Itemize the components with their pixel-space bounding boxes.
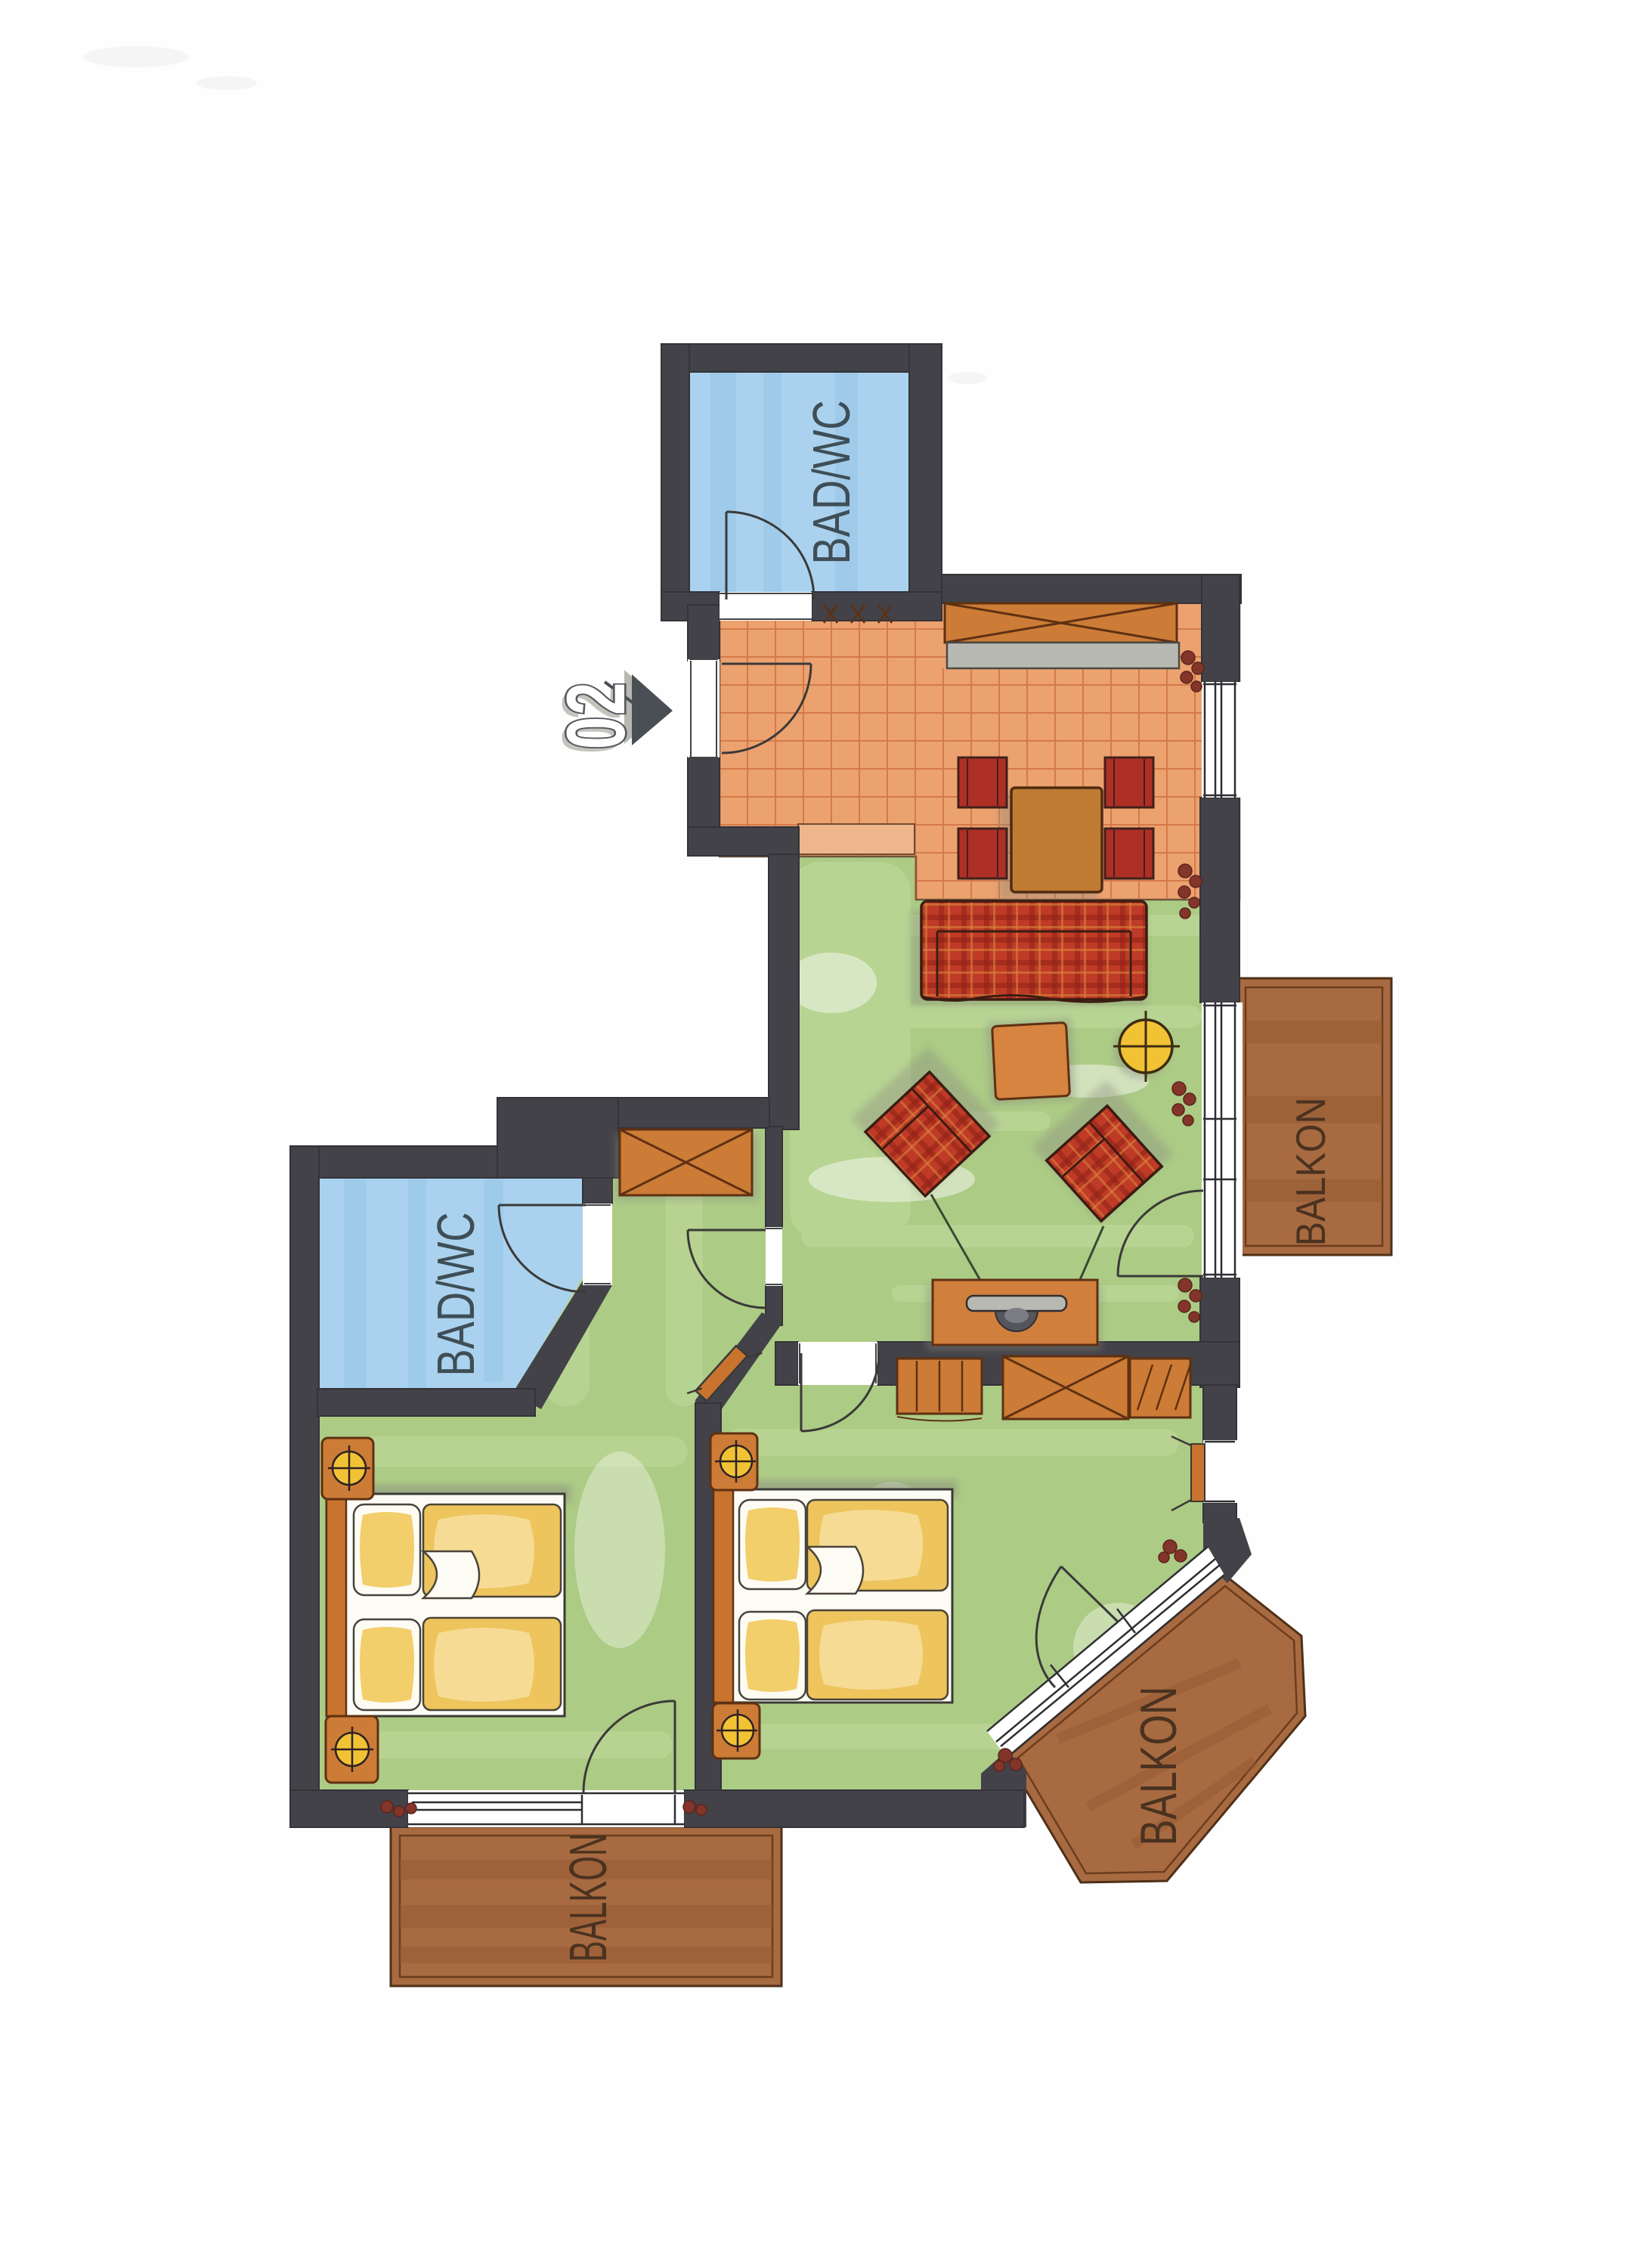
svg-text:BAD/WC: BAD/WC [426,1212,485,1376]
svg-text:02: 02 [550,681,642,750]
svg-text:BAD/WC: BAD/WC [802,400,861,564]
svg-text:BALKON: BALKON [1287,1098,1334,1247]
svg-text:BALKON: BALKON [559,1833,618,1962]
svg-text:BALKON: BALKON [1129,1687,1187,1846]
